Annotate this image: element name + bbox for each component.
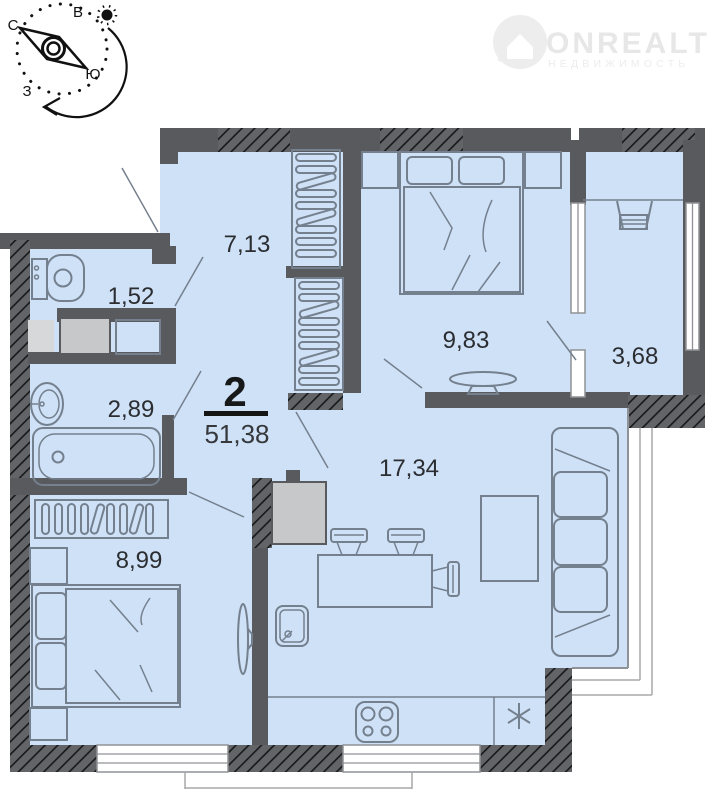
wall-tv [425, 392, 630, 408]
wall-top-hatch-a [218, 128, 290, 152]
door-entrance [122, 168, 158, 232]
room-wc-bath-floor [20, 240, 180, 500]
compass-rose: С В Ю З [8, 4, 127, 117]
rooms-count-label: 2 [223, 368, 246, 415]
pillow [36, 643, 66, 689]
wall-bath-bottom [10, 478, 187, 495]
lower-balcony-outline [185, 772, 412, 789]
room-area-label-wc: 1,52 [108, 283, 155, 310]
compass-hub-inner [48, 43, 60, 55]
wall-hall-bedroom [343, 140, 361, 393]
sun-icon [102, 10, 113, 21]
wall-vent-shaft-hatch [252, 478, 272, 548]
logo-tagline-text: НЕДВИЖИМОСТЬ [548, 58, 689, 70]
floorplan-page: С В Ю З ONREALT НЕДВИЖИМОСТЬ [0, 0, 720, 790]
fridge [272, 482, 326, 544]
wall-vent-stub [286, 470, 300, 482]
wall-service-right-mid [160, 308, 176, 364]
logo-watermark: ONREALT НЕДВИЖИМОСТЬ [493, 15, 710, 70]
room-area-label-hallway: 7,13 [224, 231, 271, 258]
summary-divider [204, 411, 268, 416]
wall-loggia-left-stub [570, 140, 586, 205]
compass-north-label: С [8, 17, 19, 34]
wall-top-left-corner [160, 128, 178, 164]
room-area-label-bedroom-main: 9,83 [443, 327, 490, 354]
wall-top-hatch-b [380, 128, 463, 152]
room-area-label-loggia: 3,68 [612, 343, 659, 370]
pillow [36, 593, 66, 639]
wall-bedroom-kitchen [252, 548, 268, 745]
wall-left-exterior [10, 240, 30, 772]
pillow [459, 157, 504, 184]
total-area-label: 51,38 [204, 419, 269, 449]
counter-strip [28, 320, 54, 352]
window-bedroom-small [97, 745, 228, 772]
washing-machine [60, 318, 110, 354]
wall-service-right-low [162, 415, 174, 478]
logo-brand-text: ONREALT [546, 27, 710, 60]
compass-west-label: З [22, 83, 31, 100]
wall-loggia-bottom-hatch [628, 395, 705, 428]
room-area-label-bathroom: 2,89 [108, 396, 155, 423]
wall-bottom-hatch-b [228, 745, 343, 772]
compass-south-label: Ю [85, 66, 100, 83]
wall-right-column-hatch [545, 668, 572, 772]
compass-east-label: В [73, 4, 83, 21]
window-kitchen [343, 745, 480, 772]
room-area-label-bedroom-small: 8,99 [116, 547, 163, 574]
wall-bottom-hatch-a [10, 745, 97, 772]
wall-below-wardrobe-hatch [288, 393, 343, 410]
room-area-label-kitchen-living: 17,34 [379, 455, 439, 482]
pillow [407, 157, 452, 184]
wall-entrance-stub [152, 246, 176, 264]
floorplan-svg: С В Ю З ONREALT НЕДВИЖИМОСТЬ [0, 0, 720, 790]
